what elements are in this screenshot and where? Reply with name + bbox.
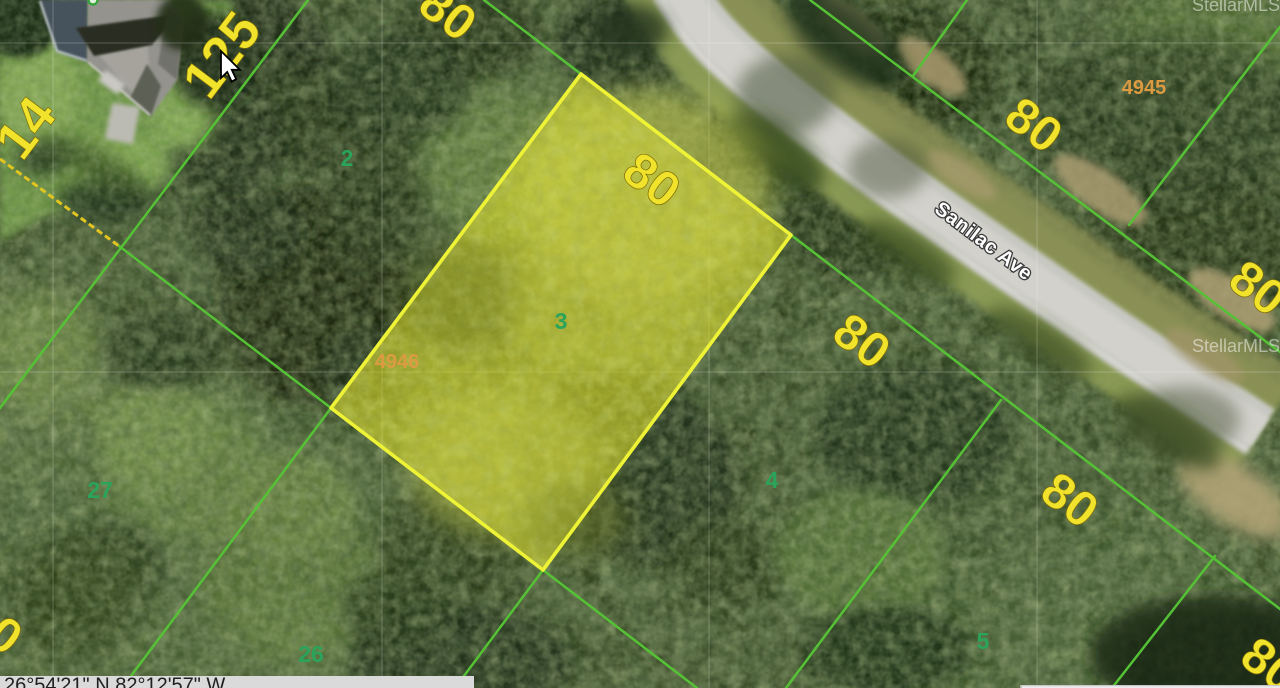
svg-text:4946: 4946: [375, 351, 420, 373]
svg-text:StellarMLS: StellarMLS: [1192, 336, 1280, 356]
svg-text:2: 2: [341, 145, 354, 171]
svg-text:26°54'21" N 82°12'57" W: 26°54'21" N 82°12'57" W: [4, 675, 225, 688]
svg-text:27: 27: [87, 477, 113, 503]
svg-text:4: 4: [766, 467, 779, 493]
svg-text:4945: 4945: [1122, 77, 1167, 99]
svg-text:3: 3: [555, 308, 568, 334]
svg-text:StellarMLS: StellarMLS: [1192, 0, 1280, 15]
svg-text:26: 26: [298, 641, 324, 667]
svg-text:5: 5: [977, 628, 990, 654]
